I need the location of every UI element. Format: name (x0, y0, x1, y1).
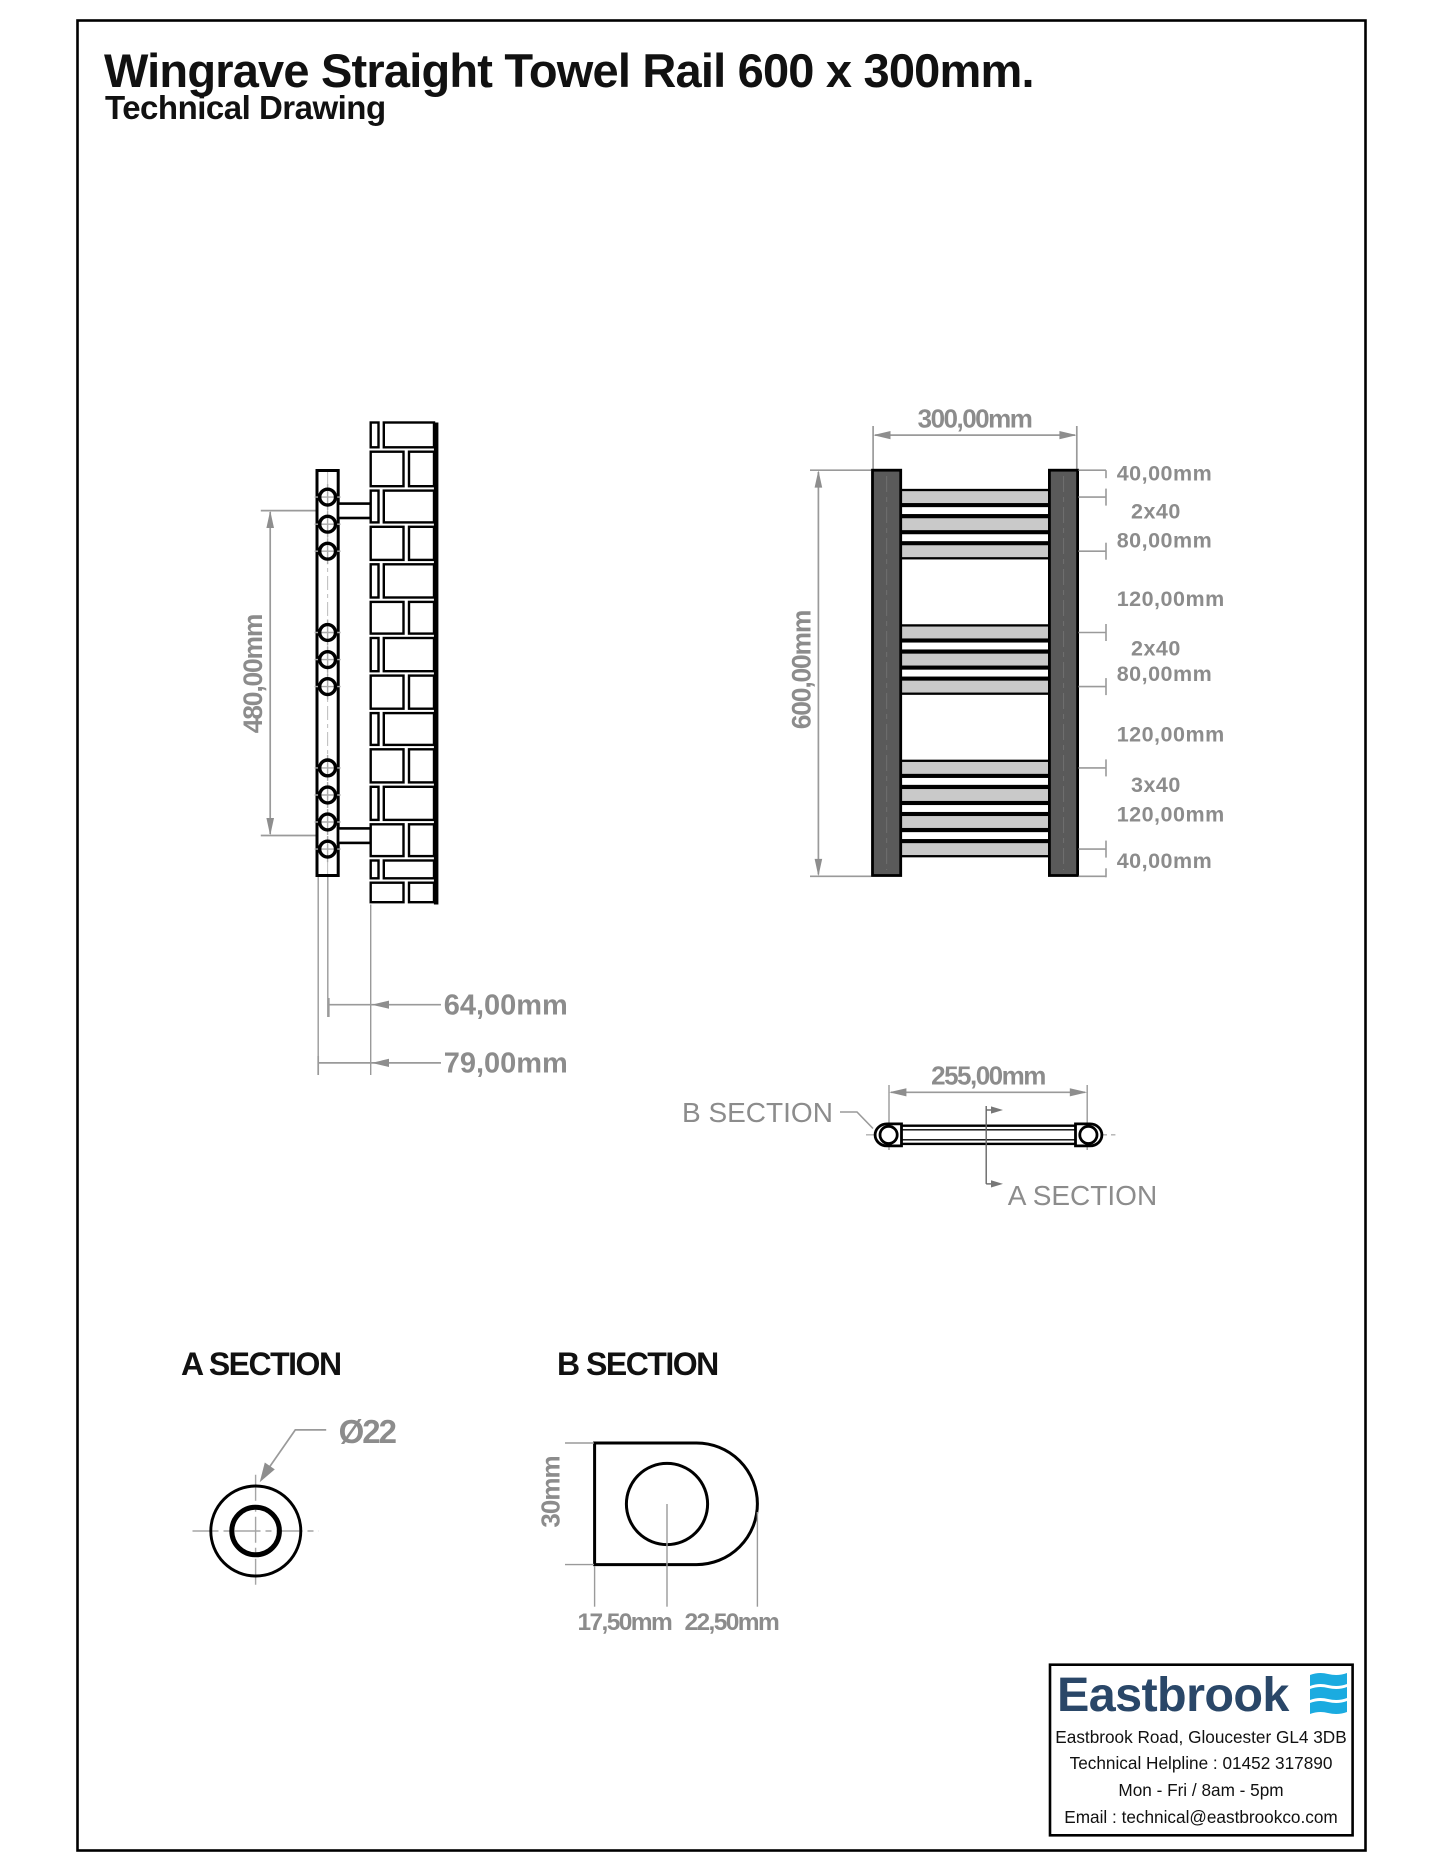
svg-text:255,00mm: 255,00mm (931, 1061, 1045, 1091)
svg-text:B SECTION: B SECTION (682, 1097, 833, 1128)
svg-text:Eastbrook Road, Gloucester GL4: Eastbrook Road, Gloucester GL4 3DB (1055, 1727, 1346, 1747)
svg-text:120,00mm: 120,00mm (1117, 723, 1225, 747)
svg-text:120,00mm: 120,00mm (1117, 802, 1225, 826)
svg-text:30mm: 30mm (536, 1456, 566, 1527)
svg-text:Technical Drawing: Technical Drawing (105, 89, 386, 126)
svg-text:22,50mm: 22,50mm (684, 1609, 778, 1636)
svg-text:80,00mm: 80,00mm (1117, 529, 1213, 553)
svg-text:Technical Helpline : 01452 317: Technical Helpline : 01452 317890 (1070, 1753, 1333, 1773)
svg-text:Ø22: Ø22 (339, 1413, 397, 1450)
svg-text:2x40: 2x40 (1131, 500, 1181, 524)
svg-text:2x40: 2x40 (1131, 636, 1181, 660)
svg-text:79,00mm: 79,00mm (444, 1048, 568, 1080)
svg-text:40,00mm: 40,00mm (1117, 849, 1213, 873)
svg-text:480,00mm: 480,00mm (238, 615, 268, 734)
svg-text:B SECTION: B SECTION (557, 1346, 718, 1382)
svg-text:A SECTION: A SECTION (181, 1346, 341, 1382)
svg-text:Email : technical@eastbrookco.: Email : technical@eastbrookco.com (1064, 1807, 1337, 1827)
svg-text:120,00mm: 120,00mm (1117, 587, 1225, 611)
svg-text:17,50mm: 17,50mm (577, 1609, 671, 1636)
svg-text:64,00mm: 64,00mm (444, 990, 568, 1022)
svg-text:Mon - Fri / 8am - 5pm: Mon - Fri / 8am - 5pm (1118, 1780, 1283, 1800)
svg-text:300,00mm: 300,00mm (918, 404, 1032, 434)
svg-text:A SECTION: A SECTION (1008, 1180, 1157, 1211)
svg-text:600,00mm: 600,00mm (787, 611, 817, 730)
svg-text:40,00mm: 40,00mm (1117, 462, 1213, 486)
svg-text:3x40: 3x40 (1131, 773, 1181, 797)
svg-text:80,00mm: 80,00mm (1117, 662, 1213, 686)
svg-text:Eastbrook: Eastbrook (1057, 1668, 1290, 1722)
